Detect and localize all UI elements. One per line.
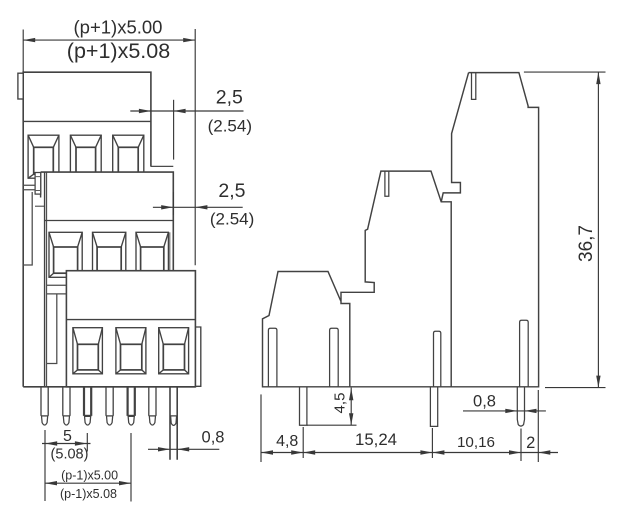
svg-text:(p-1)x5.00: (p-1)x5.00 [61,469,118,483]
svg-text:(p+1)x5.08: (p+1)x5.08 [67,39,170,63]
svg-text:(2.54): (2.54) [208,117,252,136]
svg-text:2,5: 2,5 [218,180,245,202]
svg-text:2: 2 [526,434,535,452]
svg-text:36,7: 36,7 [576,225,597,262]
svg-text:(5.08): (5.08) [51,447,89,463]
svg-text:5: 5 [63,428,72,445]
svg-text:0,8: 0,8 [202,429,225,447]
svg-text:2,5: 2,5 [216,87,243,109]
svg-text:(2.54): (2.54) [210,210,254,229]
svg-text:0,8: 0,8 [473,392,496,410]
svg-text:15,24: 15,24 [355,430,397,449]
svg-text:4,8: 4,8 [276,433,298,450]
svg-text:(p+1)x5.00: (p+1)x5.00 [74,17,163,38]
svg-text:(p-1)x5.08: (p-1)x5.08 [60,487,117,501]
svg-text:4,5: 4,5 [332,393,349,414]
svg-text:10,16: 10,16 [457,434,495,451]
